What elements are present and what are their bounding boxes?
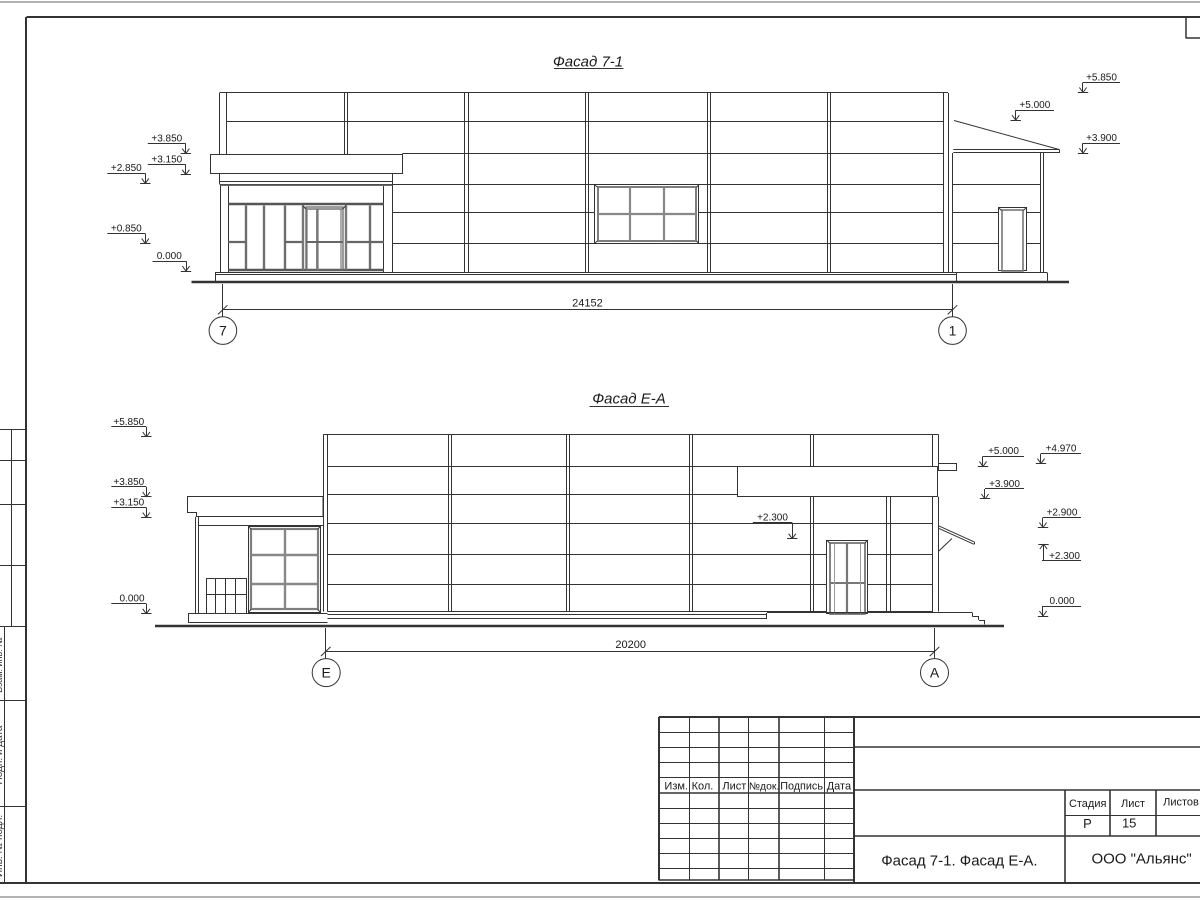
svg-text:+3.900: +3.900 bbox=[1086, 133, 1117, 144]
svg-text:Кол.: Кол. bbox=[692, 780, 714, 792]
svg-text:Стадия: Стадия bbox=[1069, 798, 1107, 810]
svg-text:+3.150: +3.150 bbox=[151, 155, 182, 166]
svg-text:Подпись: Подпись bbox=[780, 780, 823, 792]
svg-text:1: 1 bbox=[949, 323, 957, 339]
svg-text:15: 15 bbox=[1122, 816, 1136, 831]
svg-text:+0.850: +0.850 bbox=[111, 223, 142, 234]
svg-text:0.000: 0.000 bbox=[1049, 596, 1074, 607]
svg-text:+5.000: +5.000 bbox=[988, 446, 1019, 457]
svg-text:0.000: 0.000 bbox=[119, 594, 144, 605]
svg-text:Подп. и дата: Подп. и дата bbox=[0, 725, 5, 784]
svg-text:+2.300: +2.300 bbox=[1049, 551, 1080, 562]
svg-text:+5.850: +5.850 bbox=[1086, 72, 1117, 83]
svg-text:+3.850: +3.850 bbox=[151, 133, 182, 144]
svg-text:+3.150: +3.150 bbox=[113, 497, 144, 508]
svg-text:Дата: Дата bbox=[827, 780, 852, 792]
svg-text:Листов: Листов bbox=[1163, 797, 1199, 809]
svg-text:А: А bbox=[930, 665, 940, 681]
svg-text:+2.850: +2.850 bbox=[111, 163, 142, 174]
svg-text:ООО "Альянс": ООО "Альянс" bbox=[1091, 851, 1191, 868]
svg-text:Изм.: Изм. bbox=[664, 780, 688, 792]
svg-text:+5.000: +5.000 bbox=[1019, 100, 1050, 111]
svg-text:7: 7 bbox=[219, 323, 227, 339]
svg-text:0.000: 0.000 bbox=[157, 251, 182, 262]
svg-text:+2.900: +2.900 bbox=[1047, 507, 1078, 518]
svg-text:20200: 20200 bbox=[615, 639, 646, 651]
svg-text:Е: Е bbox=[322, 665, 331, 681]
svg-text:№док.: №док. bbox=[749, 781, 779, 792]
svg-text:Р: Р bbox=[1083, 816, 1092, 831]
svg-text:Фасад Е-А: Фасад Е-А bbox=[592, 391, 666, 408]
svg-text:Взам. инв. №: Взам. инв. № bbox=[0, 637, 4, 693]
svg-text:+4.970: +4.970 bbox=[1046, 443, 1077, 454]
svg-text:24152: 24152 bbox=[572, 297, 603, 309]
svg-text:Фасад 7-1. Фасад Е-А.: Фасад 7-1. Фасад Е-А. bbox=[881, 852, 1037, 869]
svg-text:Лист: Лист bbox=[722, 780, 746, 792]
svg-text:+3.900: +3.900 bbox=[989, 479, 1020, 490]
svg-text:+2.300: +2.300 bbox=[757, 513, 788, 524]
svg-text:Инв. № подл.: Инв. № подл. bbox=[0, 815, 5, 877]
svg-text:+5.850: +5.850 bbox=[113, 417, 144, 428]
svg-text:Фасад 7-1: Фасад 7-1 bbox=[553, 53, 623, 70]
svg-text:Лист: Лист bbox=[1121, 798, 1145, 810]
svg-text:+3.850: +3.850 bbox=[113, 477, 144, 488]
